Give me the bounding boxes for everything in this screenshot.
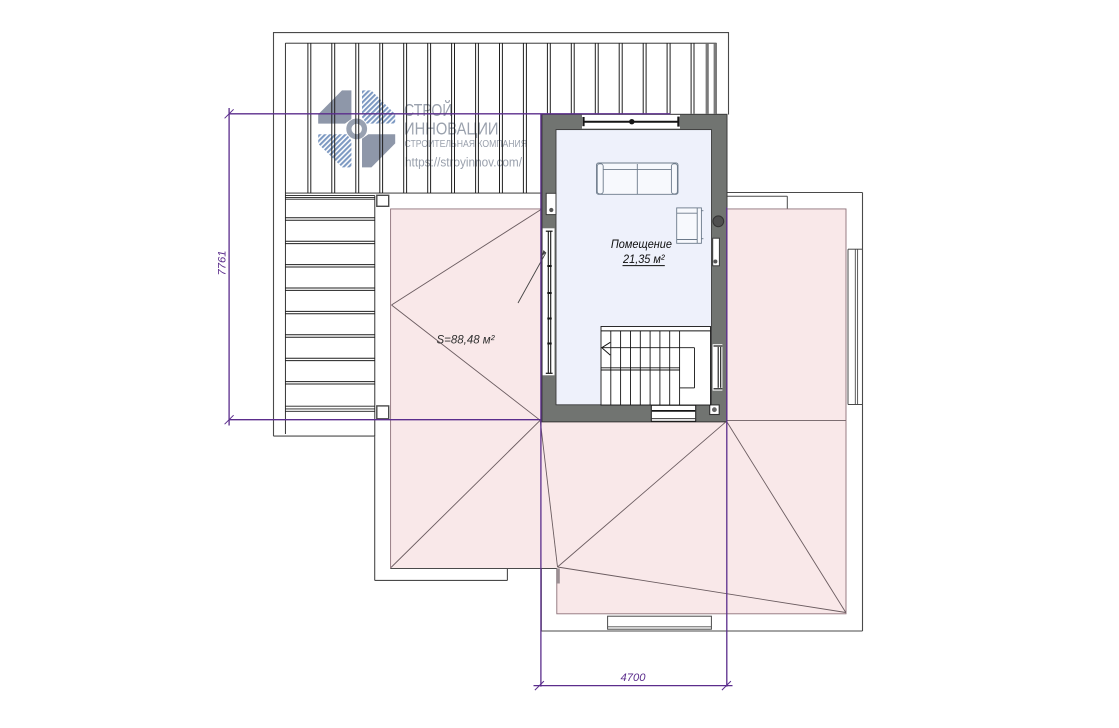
svg-text:СТРОИТЕЛЬНАЯ КОМПАНИЯ: СТРОИТЕЛЬНАЯ КОМПАНИЯ [405, 139, 528, 150]
svg-text:S=88,48 м²: S=88,48 м² [437, 332, 496, 346]
svg-text:СТРОЙ: СТРОЙ [404, 100, 453, 120]
svg-text:4700: 4700 [621, 672, 647, 684]
svg-text:7761: 7761 [217, 251, 229, 276]
svg-text:Помещение: Помещение [611, 237, 672, 251]
svg-text:21,35 м²: 21,35 м² [622, 252, 665, 266]
svg-text:https://stroyinnov.com/: https://stroyinnov.com/ [405, 154, 522, 169]
